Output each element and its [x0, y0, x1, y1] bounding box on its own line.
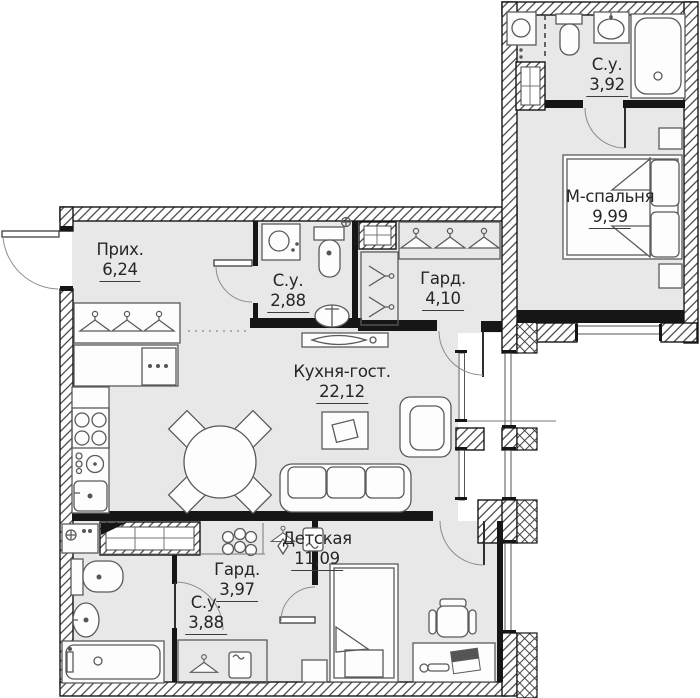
nightstand — [659, 128, 682, 149]
pillow-icon — [651, 212, 679, 257]
bed-icon — [330, 564, 398, 682]
room-label-wardrobe-hall: Гард. 4,10 — [420, 269, 466, 311]
room-label-kitchen-living: Кухня-гост. 22,12 — [293, 362, 390, 404]
toilet-icon — [314, 227, 344, 240]
room-label-children-room: Детская 11,09 — [282, 529, 352, 571]
nightstand — [659, 264, 682, 288]
room-label-hallway: Прих. 6,24 — [96, 240, 143, 282]
basket-icon — [229, 652, 251, 678]
bathtub-icon — [62, 641, 164, 683]
hallway-coat-rack — [74, 303, 180, 386]
kitchen-fixtures — [72, 387, 109, 513]
sofa — [280, 464, 411, 512]
dining-table — [169, 411, 272, 514]
washing-machine-icon — [262, 224, 300, 260]
pillow-icon — [651, 160, 679, 206]
floor-plan-drawing — [0, 0, 700, 698]
tv-console — [302, 333, 388, 347]
room-label-master-bedroom: М-спальня 9,99 — [566, 187, 654, 229]
bathtub-icon — [631, 14, 685, 98]
room-label-bathroom-hall: С.у. 2,88 — [267, 271, 309, 313]
nightstand — [302, 660, 327, 682]
laptop-icon — [451, 648, 481, 674]
coffee-table — [322, 412, 368, 449]
toilet-icon — [71, 559, 83, 595]
toilet-icon — [556, 14, 582, 24]
room-label-bathroom-children: С.у. 3,88 — [185, 593, 227, 635]
room-label-bathroom-master: С.у. 3,92 — [586, 55, 628, 97]
floor-plan: Прих. 6,24 С.у. 2,88 Гард. 4,10 С.у. 3,9… — [0, 0, 700, 698]
entrance-door-leaf — [2, 231, 59, 237]
armchair — [400, 397, 451, 457]
washing-machine-icon — [507, 12, 536, 45]
